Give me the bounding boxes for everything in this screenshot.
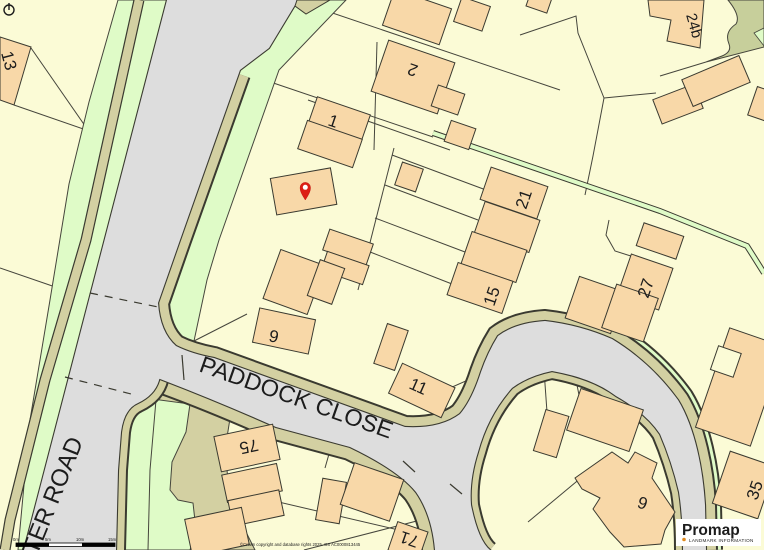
- svg-text:0m: 0m: [13, 537, 19, 542]
- svg-text:10m: 10m: [76, 537, 85, 542]
- svg-text:©Crown copyright and database: ©Crown copyright and database rights 202…: [240, 542, 361, 547]
- svg-text:LANDMARK INFORMATION: LANDMARK INFORMATION: [689, 538, 754, 543]
- svg-text:5m: 5m: [45, 537, 51, 542]
- svg-text:15m: 15m: [108, 537, 117, 542]
- svg-text:Promap: Promap: [682, 522, 740, 539]
- svg-text:75: 75: [238, 435, 260, 458]
